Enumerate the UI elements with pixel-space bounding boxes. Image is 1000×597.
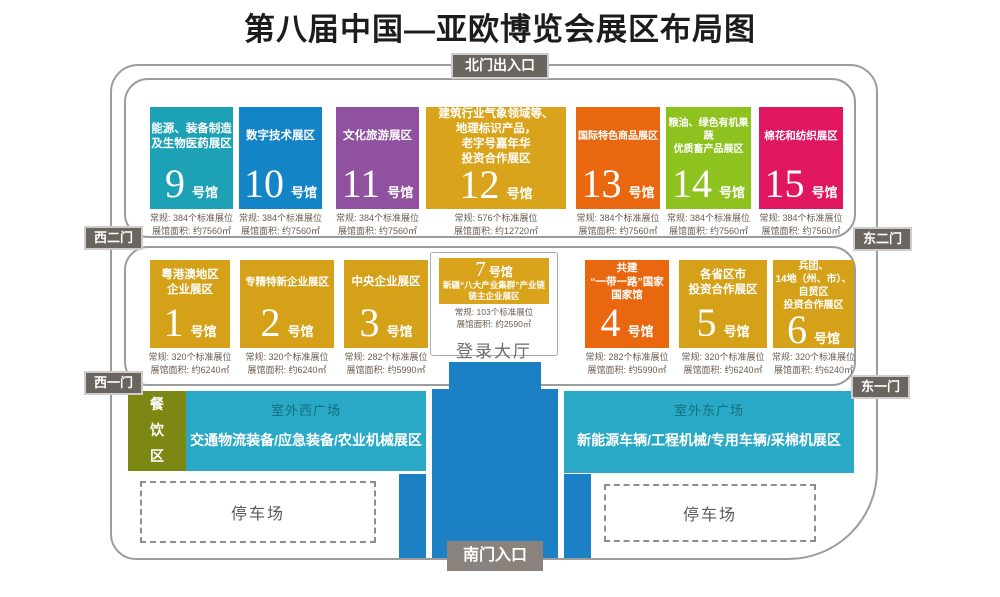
gate-east-1: 东一门	[851, 375, 910, 399]
hall-booths: 常规: 384个标准展位	[336, 212, 419, 225]
hall-number-row: 14 号馆	[666, 166, 751, 209]
hall-booths: 常规: 576个标准展位	[454, 212, 537, 225]
hall-14: 粮油、绿色有机果蔬 优质畜产品展区 14 号馆 常规: 384个标准展位 展馆面…	[666, 107, 751, 237]
hall-suffix: 号馆	[811, 182, 837, 201]
hall-12-block: 建筑行业气象领域等、 地理标识产品， 老字号嘉年华 投资合作展区 12 号馆	[426, 107, 566, 209]
dining-area-label: 餐饮区	[150, 392, 165, 470]
hall-suffix: 号馆	[386, 321, 412, 340]
dining-area: 餐饮区	[128, 391, 186, 471]
hall-area: 展馆面积: 约6240㎡	[683, 364, 762, 377]
hall-stats: 常规: 384个标准展位 展馆面积: 约7560㎡	[239, 212, 322, 237]
gate-west-2: 西二门	[84, 226, 143, 250]
hall-number: 7	[475, 259, 486, 280]
hall-stats: 常规: 320个标准展位 展馆面积: 约6240㎡	[240, 351, 334, 376]
hall-area: 展馆面积: 约7560㎡	[338, 225, 417, 238]
hall-area: 展馆面积: 约6240㎡	[247, 364, 326, 377]
hall-booths: 常规: 384个标准展位	[239, 212, 322, 225]
hall-area: 展馆面积: 约7560㎡	[152, 225, 231, 238]
hall-11-block: 文化旅游展区 11 号馆	[336, 107, 419, 209]
plaza-title: 室外西广场	[186, 400, 426, 419]
hall-number: 6	[787, 312, 807, 348]
hall-number: 1	[163, 305, 183, 341]
hall-2: 专精特新企业展区 2 号馆 常规: 320个标准展位 展馆面积: 约6240㎡	[240, 260, 334, 376]
hall-5-block: 各省区市 投资合作展区 5 号馆	[679, 260, 767, 348]
hall-suffix: 号馆	[506, 183, 532, 202]
hall-number-row: 15 号馆	[759, 166, 843, 209]
hall-booths: 常规: 320个标准展位	[245, 351, 328, 364]
hall-number: 15	[764, 166, 804, 202]
hall-1-block: 粤港澳地区 企业展区 1 号馆	[150, 260, 230, 348]
hall-number-row: 1 号馆	[150, 305, 230, 348]
south-entrance-corridor-top	[449, 362, 541, 389]
parking-label: 停车场	[683, 501, 737, 525]
hall-number-row: 10 号馆	[239, 166, 322, 209]
hall-suffix: 号馆	[387, 182, 413, 201]
hall-stats: 常规: 320个标准展位 展馆面积: 约6240㎡	[679, 351, 767, 376]
gate-east-2: 东二门	[853, 227, 912, 251]
hall-stats: 常规: 282个标准展位 展馆面积: 约5990㎡	[344, 351, 428, 376]
hall-suffix: 号馆	[719, 182, 745, 201]
hall-area: 展馆面积: 约6240㎡	[150, 364, 229, 377]
gate-west-1: 西一门	[84, 371, 143, 395]
hall-stats: 常规: 576个标准展位 展馆面积: 约12720㎡	[426, 212, 566, 237]
gate-south: 南门入口	[447, 541, 543, 571]
hall-number: 11	[342, 166, 381, 202]
hall-11: 文化旅游展区 11 号馆 常规: 384个标准展位 展馆面积: 约7560㎡	[336, 107, 419, 237]
hall-stats: 常规: 320个标准展位 展馆面积: 约6240㎡	[773, 351, 854, 376]
hall-name: 建筑行业气象领域等、 地理标识产品， 老字号嘉年华 投资合作展区	[427, 107, 565, 167]
hall-number: 4	[600, 305, 620, 341]
hall-number: 13	[581, 166, 621, 202]
hall-suffix: 号馆	[628, 182, 654, 201]
hall-stats: 常规: 320个标准展位 展馆面积: 约6240㎡	[150, 351, 230, 376]
entrance-lane-east	[564, 474, 591, 558]
login-hall-label: 登录大厅	[431, 337, 557, 362]
hall-booths: 常规: 103个标准展位	[431, 307, 557, 319]
hall-name: 棉花和纺织展区	[760, 130, 842, 144]
hall-6: 兵团、 14地（州、市）、 自贸区 投资合作展区 6 号馆 常规: 320个标准…	[773, 260, 854, 376]
hall-area: 展馆面积: 约7560㎡	[761, 225, 840, 238]
hall-name: 粤港澳地区 企业展区	[151, 268, 229, 298]
hall-number-row: 6 号馆	[773, 312, 854, 355]
hall-number-row: 3 号馆	[344, 305, 428, 348]
hall-6-block: 兵团、 14地（州、市）、 自贸区 投资合作展区 6 号馆	[773, 260, 854, 348]
hall-suffix: 号馆	[287, 321, 313, 340]
hall-stats: 常规: 282个标准展位 展馆面积: 约5990㎡	[585, 351, 669, 376]
hall-10: 数字技术展区 10 号馆 常规: 384个标准展位 展馆面积: 约7560㎡	[239, 107, 322, 237]
hall-name: 各省区市 投资合作展区	[680, 268, 766, 298]
hall-9: 能源、装备制造 及生物医药展区 9 号馆 常规: 384个标准展位 展馆面积: …	[150, 107, 233, 237]
hall-area: 展馆面积: 约5990㎡	[346, 364, 425, 377]
hall-number: 2	[260, 305, 280, 341]
hall-booths: 常规: 320个标准展位	[148, 351, 231, 364]
hall-name: 国际特色商品展区	[577, 130, 659, 143]
plaza-zone-label: 交通物流装备/应急装备/农业机械展区	[186, 430, 426, 450]
hall-number-row: 13 号馆	[576, 166, 660, 209]
hall-suffix: 号馆	[627, 321, 653, 340]
hall-number: 9	[165, 166, 185, 202]
hall-10-block: 数字技术展区 10 号馆	[239, 107, 322, 209]
plaza-title: 室外东广场	[564, 400, 854, 419]
hall-name: 新疆“八大产业集群”产业链 链主企业展区	[439, 280, 549, 301]
hall-13: 国际特色商品展区 13 号馆 常规: 384个标准展位 展馆面积: 约7560㎡	[576, 107, 660, 237]
hall-stats: 常规: 384个标准展位 展馆面积: 约7560㎡	[576, 212, 660, 237]
hall-name: 能源、装备制造 及生物医药展区	[151, 122, 232, 152]
hall-14-block: 粮油、绿色有机果蔬 优质畜产品展区 14 号馆	[666, 107, 751, 209]
hall-number-row: 9 号馆	[150, 166, 233, 209]
hall-area: 展馆面积: 约6240㎡	[774, 364, 853, 377]
parking-lot-east: 停车场	[604, 484, 816, 542]
hall-5: 各省区市 投资合作展区 5 号馆 常规: 320个标准展位 展馆面积: 约624…	[679, 260, 767, 376]
hall-7-login-box: 7 号馆 新疆“八大产业集群”产业链 链主企业展区 常规: 103个标准展位 展…	[430, 252, 558, 356]
outdoor-west-plaza: 室外西广场 交通物流装备/应急装备/农业机械展区	[186, 391, 426, 471]
hall-number-row: 2 号馆	[240, 305, 334, 348]
hall-number-row: 4 号馆	[585, 305, 669, 348]
hall-booths: 常规: 384个标准展位	[759, 212, 842, 225]
hall-name: 文化旅游展区	[337, 129, 418, 144]
hall-suffix: 号馆	[291, 182, 317, 201]
hall-area: 展馆面积: 约7560㎡	[669, 225, 748, 238]
hall-number: 12	[459, 167, 499, 203]
hall-area: 展馆面积: 约2590㎡	[431, 319, 557, 331]
hall-number-row: 12 号馆	[426, 167, 566, 210]
hall-name: 专精特新企业展区	[241, 276, 333, 290]
parking-label: 停车场	[231, 500, 285, 524]
hall-15: 棉花和纺织展区 15 号馆 常规: 384个标准展位 展馆面积: 约7560㎡	[759, 107, 843, 237]
hall-stats: 常规: 384个标准展位 展馆面积: 约7560㎡	[150, 212, 233, 237]
hall-booths: 常规: 282个标准展位	[585, 351, 668, 364]
hall-15-block: 棉花和纺织展区 15 号馆	[759, 107, 843, 209]
hall-booths: 常规: 282个标准展位	[344, 351, 427, 364]
hall-1: 粤港澳地区 企业展区 1 号馆 常规: 320个标准展位 展馆面积: 约6240…	[150, 260, 230, 376]
south-entrance-corridor	[432, 389, 558, 558]
hall-number: 10	[244, 166, 284, 202]
hall-name: 共建 “一带一路”国家 国家馆	[586, 262, 668, 303]
expo-layout-map: 第八届中国—亚欧博览会展区布局图 北门出入口 西二门 东二门 西一门 东一门 南…	[0, 0, 1000, 597]
hall-name: 数字技术展区	[240, 129, 321, 144]
parking-lot-west: 停车场	[140, 481, 376, 543]
page-title: 第八届中国—亚欧博览会展区布局图	[0, 4, 1000, 49]
hall-13-block: 国际特色商品展区 13 号馆	[576, 107, 660, 209]
hall-stats: 常规: 384个标准展位 展馆面积: 约7560㎡	[666, 212, 751, 237]
hall-area: 展馆面积: 约5990㎡	[587, 364, 666, 377]
hall-suffix: 号馆	[814, 328, 840, 347]
hall-booths: 常规: 320个标准展位	[772, 351, 855, 364]
hall-9-block: 能源、装备制造 及生物医药展区 9 号馆	[150, 107, 233, 209]
hall-area: 展馆面积: 约7560㎡	[578, 225, 657, 238]
hall-stats: 常规: 384个标准展位 展馆面积: 约7560㎡	[759, 212, 843, 237]
hall-number-row: 11 号馆	[336, 166, 419, 209]
hall-booths: 常规: 384个标准展位	[667, 212, 750, 225]
hall-stats: 常规: 384个标准展位 展馆面积: 约7560㎡	[336, 212, 419, 237]
hall-booths: 常规: 384个标准展位	[150, 212, 233, 225]
hall-area: 展馆面积: 约12720㎡	[454, 225, 538, 238]
hall-7-block: 7 号馆 新疆“八大产业集群”产业链 链主企业展区	[439, 258, 549, 304]
hall-booths: 常规: 384个标准展位	[576, 212, 659, 225]
hall-suffix: 号馆	[192, 182, 218, 201]
hall-name: 粮油、绿色有机果蔬 优质畜产品展区	[667, 117, 750, 156]
hall-3-block: 中央企业展区 3 号馆	[344, 260, 428, 348]
hall-4: 共建 “一带一路”国家 国家馆 4 号馆 常规: 282个标准展位 展馆面积: …	[585, 260, 669, 376]
hall-number-row: 5 号馆	[679, 305, 767, 348]
hall-4-block: 共建 “一带一路”国家 国家馆 4 号馆	[585, 260, 669, 348]
hall-number-row: 7 号馆	[439, 259, 549, 280]
gate-north: 北门出入口	[451, 53, 549, 79]
outdoor-east-plaza: 室外东广场 新能源车辆/工程机械/专用车辆/采棉机展区	[564, 391, 854, 473]
entrance-lane-west	[399, 474, 426, 558]
hall-booths: 常规: 320个标准展位	[681, 351, 764, 364]
hall-area: 展馆面积: 约7560㎡	[241, 225, 320, 238]
hall-12: 建筑行业气象领域等、 地理标识产品， 老字号嘉年华 投资合作展区 12 号馆 常…	[426, 107, 566, 237]
hall-suffix: 号馆	[723, 321, 749, 340]
plaza-zone-label: 新能源车辆/工程机械/专用车辆/采棉机展区	[564, 430, 854, 450]
hall-suffix: 号馆	[190, 321, 216, 340]
hall-number: 5	[696, 305, 716, 341]
hall-name: 兵团、 14地（州、市）、 自贸区 投资合作展区	[774, 260, 853, 312]
hall-name: 中央企业展区	[345, 275, 427, 290]
hall-number: 14	[672, 166, 712, 202]
hall-2-block: 专精特新企业展区 2 号馆	[240, 260, 334, 348]
hall-stats: 常规: 103个标准展位 展馆面积: 约2590㎡	[431, 307, 557, 331]
hall-suffix: 号馆	[489, 263, 513, 280]
hall-number: 3	[359, 305, 379, 341]
hall-3: 中央企业展区 3 号馆 常规: 282个标准展位 展馆面积: 约5990㎡	[344, 260, 428, 376]
